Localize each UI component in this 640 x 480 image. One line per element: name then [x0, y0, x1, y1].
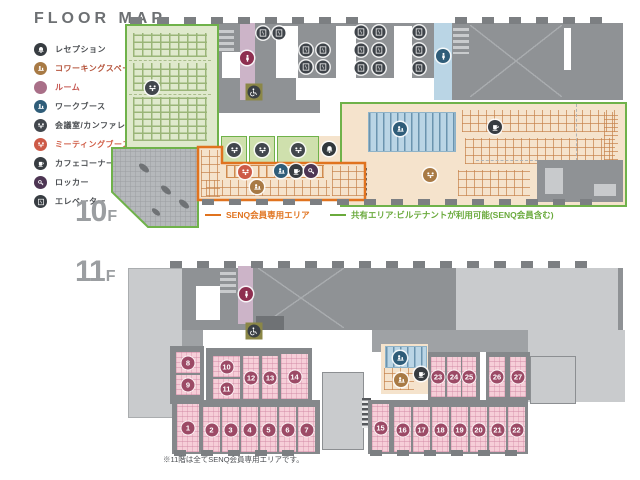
room-number-badge: 17 — [415, 423, 428, 436]
footnote: ※11階は全てSENQ会員専用エリアです。 — [163, 454, 304, 465]
room-15: 15 — [372, 404, 389, 452]
room-2: 2 — [203, 407, 220, 452]
wall-column — [494, 261, 506, 268]
wall-column — [251, 261, 263, 268]
senq-area-line — [205, 214, 221, 217]
stairs — [220, 272, 236, 294]
cafe-corner-marker — [414, 367, 428, 381]
room-11: 11 — [213, 379, 240, 399]
room-number-badge: 15 — [374, 422, 387, 435]
wall-column — [278, 261, 290, 268]
room-19: 19 — [451, 407, 468, 452]
wall-column — [505, 450, 517, 456]
area-legend-senq: SENQ会員専用エリア — [205, 209, 310, 221]
wall-column — [575, 261, 587, 268]
coworking-marker — [394, 373, 408, 387]
room-number-badge: 14 — [288, 370, 301, 383]
wall-column — [478, 450, 490, 456]
corridor — [312, 330, 372, 374]
room-7: 7 — [298, 407, 315, 452]
room-17: 17 — [413, 407, 430, 452]
room-24: 24 — [447, 357, 461, 397]
room-number-badge: 19 — [453, 423, 466, 436]
room-number-badge: 11 — [220, 383, 233, 396]
room-number-badge: 12 — [245, 371, 258, 384]
room-6: 6 — [279, 407, 296, 452]
room-number-badge: 16 — [396, 423, 409, 436]
wall-column — [170, 261, 182, 268]
room-number-badge: 6 — [281, 423, 294, 436]
shaft — [530, 356, 576, 404]
area-legend-shared: 共有エリア:ビルテナントが利用可能(SENQ会員含む) — [330, 209, 554, 221]
room-number-badge: 8 — [182, 356, 195, 369]
room-number-badge: 13 — [264, 371, 277, 384]
wall-column — [397, 450, 409, 456]
room-number-badge: 9 — [182, 379, 195, 392]
wall-column — [521, 261, 533, 268]
room-number-badge: 22 — [510, 423, 523, 436]
room-number-badge: 3 — [224, 423, 237, 436]
elevator-shaft — [322, 372, 364, 450]
wall-column — [370, 450, 382, 456]
room-18: 18 — [432, 407, 449, 452]
room-26: 26 — [489, 357, 505, 397]
wall-column — [467, 261, 479, 268]
room-number-badge: 26 — [491, 371, 504, 384]
wall-column — [548, 261, 560, 268]
floor-plan-11f: 8910111213141234567151617181920212223242… — [0, 0, 640, 480]
room-9: 9 — [176, 375, 200, 395]
room-number-badge: 21 — [491, 423, 504, 436]
room-13: 13 — [262, 356, 278, 399]
room-20: 20 — [470, 407, 487, 452]
room-16: 16 — [394, 407, 411, 452]
room-12: 12 — [243, 356, 259, 399]
wall-column — [197, 261, 209, 268]
shared-area-label: 共有エリア:ビルテナントが利用可能(SENQ会員含む) — [351, 209, 554, 221]
accessible-toilet-marker — [246, 323, 263, 340]
work-booth-marker — [393, 351, 407, 365]
room-3: 3 — [222, 407, 239, 452]
room-number-badge: 10 — [220, 360, 233, 373]
room-5: 5 — [260, 407, 277, 452]
wall-column — [424, 450, 436, 456]
wall-column — [359, 261, 371, 268]
wall-column — [440, 261, 452, 268]
room-number-badge: 7 — [300, 423, 313, 436]
room-25: 25 — [462, 357, 476, 397]
floor-map-page: FLOOR MAP レセプションコワーキングスペースルームワークブース会議室/カ… — [0, 0, 640, 480]
wall-column — [224, 261, 236, 268]
room-number-badge: 1 — [182, 422, 195, 435]
restroom-women-marker — [239, 287, 253, 301]
room-8: 8 — [176, 352, 200, 373]
room-number-badge: 24 — [448, 371, 461, 384]
senq-area-label: SENQ会員専用エリア — [226, 209, 310, 221]
room-10: 10 — [213, 356, 240, 377]
room-1: 1 — [177, 404, 199, 452]
room-4: 4 — [241, 407, 258, 452]
shared-area-line — [330, 214, 346, 217]
room-number-badge: 2 — [205, 423, 218, 436]
room-27: 27 — [510, 357, 526, 397]
room-21: 21 — [489, 407, 506, 452]
room-number-badge: 20 — [472, 423, 485, 436]
room-number-badge: 27 — [512, 371, 525, 384]
room-22: 22 — [508, 407, 525, 452]
wall-column — [305, 261, 317, 268]
wall-column — [413, 261, 425, 268]
room-cutout — [196, 286, 220, 320]
wall-column — [386, 261, 398, 268]
room-14: 14 — [281, 354, 308, 399]
tenant-area — [456, 268, 618, 330]
wall-column — [451, 450, 463, 456]
room-number-badge: 4 — [243, 423, 256, 436]
wheelchair-icon — [248, 325, 261, 338]
room-23: 23 — [431, 357, 445, 397]
wall-column — [332, 261, 344, 268]
room-number-badge: 25 — [463, 371, 476, 384]
room-number-badge: 23 — [432, 371, 445, 384]
room-number-badge: 18 — [434, 423, 447, 436]
room-number-badge: 5 — [262, 423, 275, 436]
